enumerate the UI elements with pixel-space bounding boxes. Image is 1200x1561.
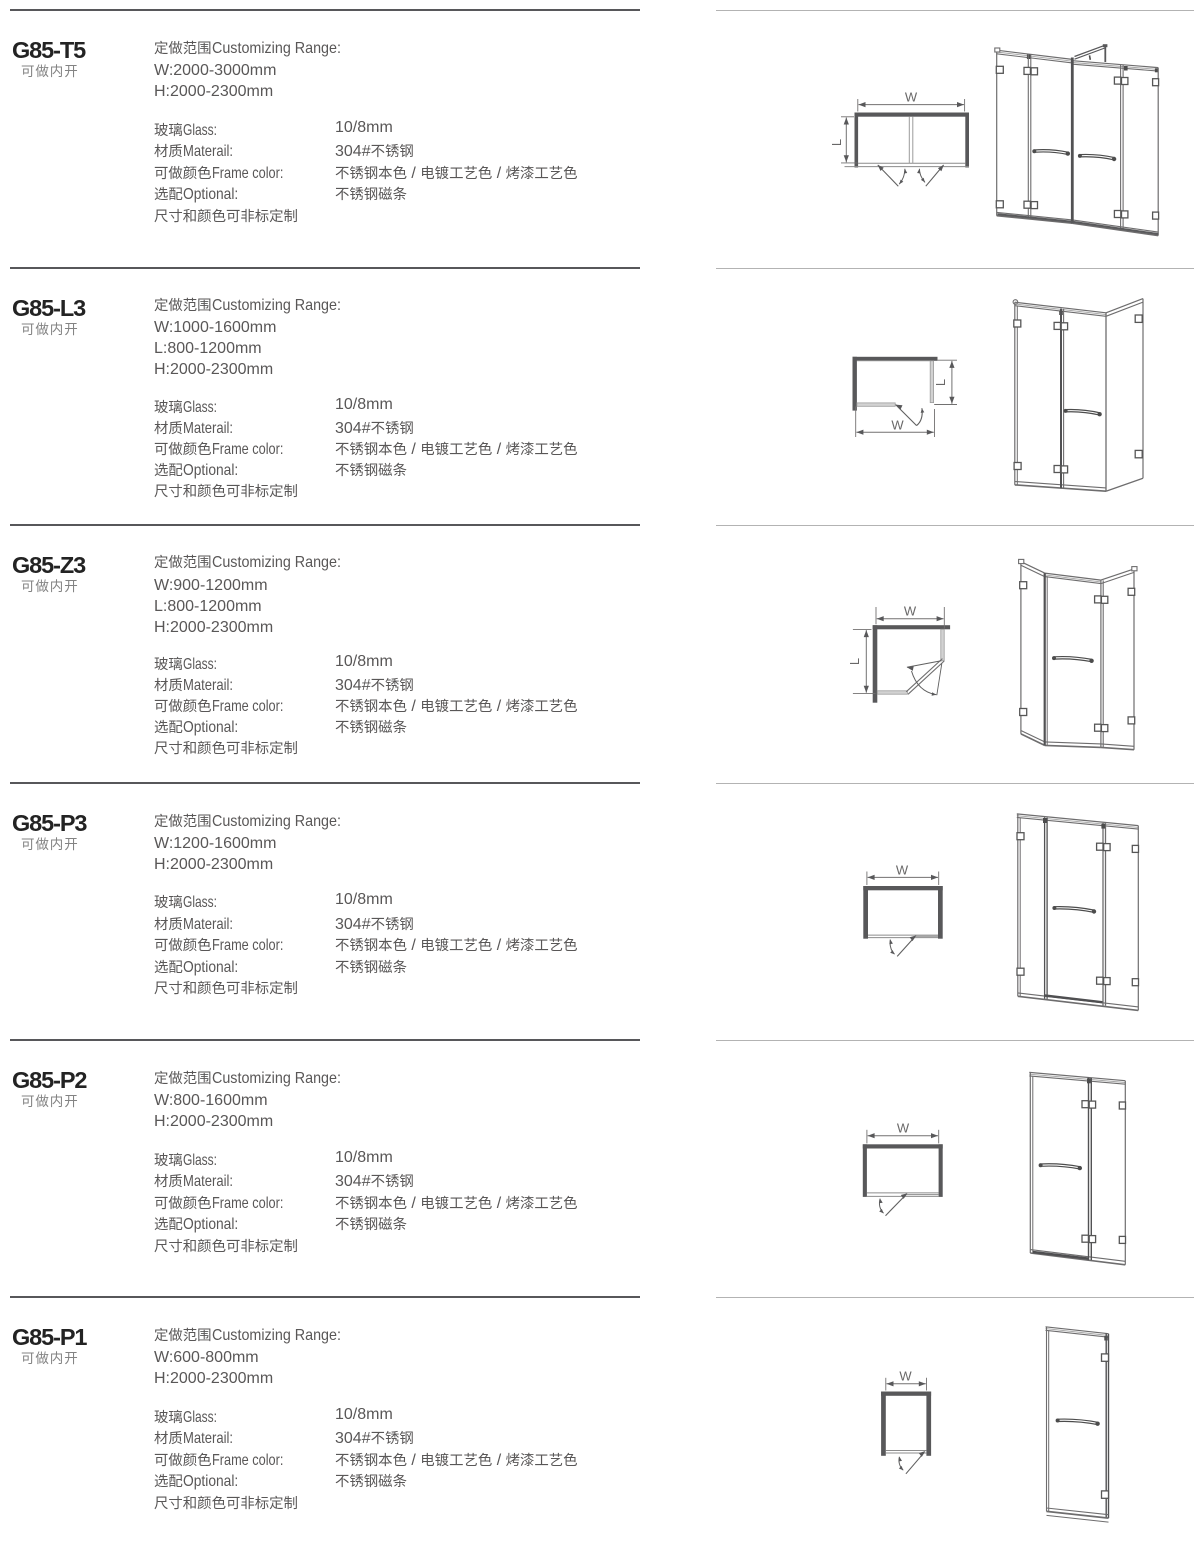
svg-text:W: W [897,1121,910,1136]
svg-text:L: L [933,379,948,386]
svg-text:W: W [891,418,904,433]
svg-text:W: W [905,90,918,105]
svg-text:L: L [829,139,844,146]
svg-text:W: W [899,1369,912,1384]
svg-text:L: L [847,658,862,665]
svg-text:W: W [896,862,909,877]
svg-text:W: W [904,604,917,619]
